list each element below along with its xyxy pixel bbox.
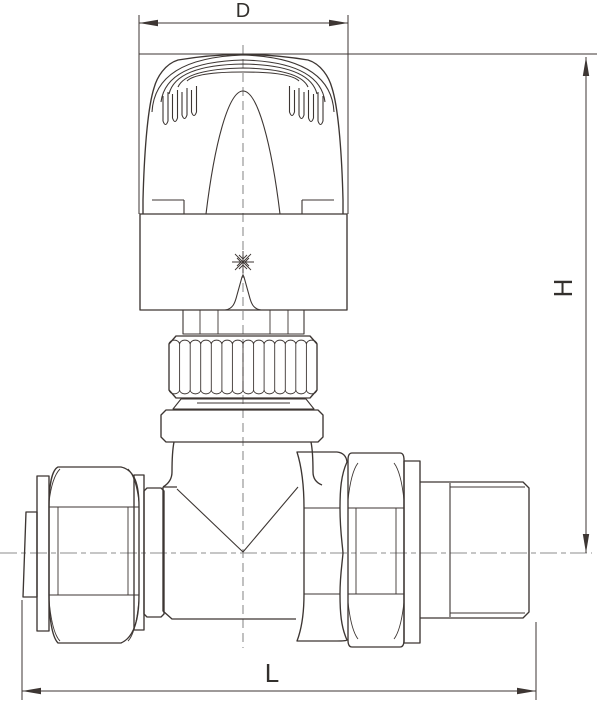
pipe-stub — [23, 512, 37, 597]
arrow-right-icon — [517, 688, 536, 694]
arrow-up-icon — [583, 57, 589, 76]
valve-technical-drawing: D H L — [0, 0, 600, 720]
compression-nut — [49, 467, 139, 643]
dimension-d-label: D — [236, 0, 250, 22]
valve-seat-lines — [177, 487, 298, 552]
tailpiece-nut — [348, 453, 404, 647]
knurled-locking-ring — [169, 336, 317, 398]
male-thread — [420, 482, 529, 618]
arrow-right-icon — [329, 20, 348, 26]
dimension-h-label: H — [548, 279, 578, 298]
union-flange — [404, 461, 420, 643]
arrow-left-icon — [22, 688, 41, 694]
union-nut — [297, 452, 347, 641]
dimension-l-label: L — [265, 658, 279, 688]
arrow-down-icon — [583, 534, 589, 553]
arrow-left-icon — [139, 20, 158, 26]
valve-bonnet — [161, 399, 323, 442]
technical-drawing-canvas: D H L — [0, 0, 600, 720]
dimension-l: L — [22, 600, 536, 700]
snowflake-icon — [232, 251, 254, 273]
dimension-h: H — [139, 54, 597, 553]
